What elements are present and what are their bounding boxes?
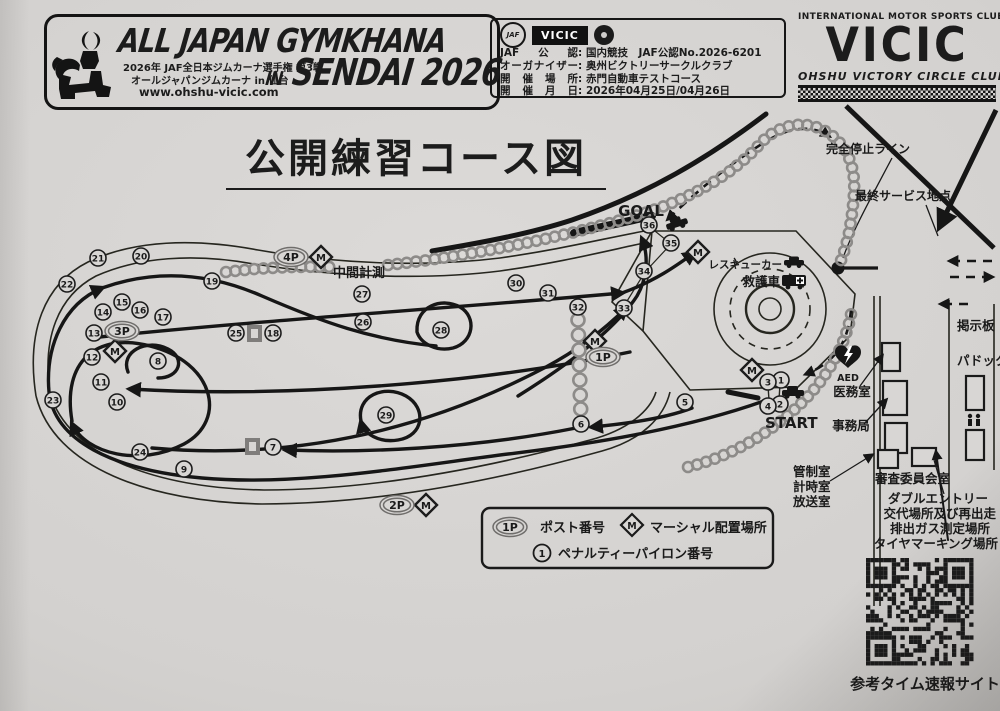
marshal-letter: M bbox=[316, 253, 326, 264]
pylon-number: 6 bbox=[578, 420, 584, 430]
qr-module bbox=[948, 558, 952, 562]
qr-module bbox=[913, 605, 917, 609]
qr-module bbox=[900, 592, 904, 596]
qr-module bbox=[935, 567, 939, 571]
slalom-pylon bbox=[574, 389, 587, 402]
qr-module bbox=[900, 601, 904, 605]
qr-module bbox=[931, 605, 935, 609]
qr-module bbox=[866, 580, 870, 584]
qr-module bbox=[931, 618, 935, 622]
qr-module bbox=[913, 580, 917, 584]
pylon-number: 5 bbox=[682, 398, 688, 408]
pylon-number: 8 bbox=[155, 357, 161, 367]
qr-module bbox=[866, 653, 870, 657]
qr-module bbox=[905, 627, 909, 631]
qr-module bbox=[931, 635, 935, 639]
qr-module bbox=[879, 648, 883, 652]
qr-module bbox=[905, 575, 909, 579]
qr-module bbox=[905, 648, 909, 652]
pylon-number: 31 bbox=[542, 289, 555, 299]
qr-module bbox=[900, 584, 904, 588]
ambulance-icon bbox=[782, 275, 806, 289]
qr-module bbox=[875, 592, 879, 596]
qr-module bbox=[961, 584, 965, 588]
pylon-number: 23 bbox=[47, 396, 60, 406]
qr-module bbox=[943, 635, 947, 639]
pylon-number: 12 bbox=[86, 353, 99, 363]
qr-module bbox=[961, 588, 965, 592]
qr-module bbox=[939, 610, 943, 614]
qr-module bbox=[965, 584, 969, 588]
qr-module bbox=[879, 567, 883, 571]
timing-room-label: 計時室 bbox=[793, 479, 831, 494]
pylon-number: 25 bbox=[230, 329, 243, 339]
qr-module bbox=[961, 571, 965, 575]
qr-module bbox=[935, 648, 939, 652]
qr-module bbox=[879, 618, 883, 622]
legend-penalty-symbol: 1 bbox=[539, 549, 546, 560]
qr-module bbox=[913, 575, 917, 579]
qr-module bbox=[956, 614, 960, 618]
pylon-number: 30 bbox=[510, 279, 523, 289]
qr-module bbox=[922, 584, 926, 588]
qr-module bbox=[918, 644, 922, 648]
qr-module bbox=[892, 567, 896, 571]
aed-icon bbox=[835, 345, 861, 368]
qr-module bbox=[918, 567, 922, 571]
qr-caption: 参考タイム速報サイト bbox=[850, 675, 1000, 693]
qr-module bbox=[866, 605, 870, 609]
qr-module bbox=[956, 558, 960, 562]
qr-module bbox=[918, 635, 922, 639]
legend-post-text: ポスト番号 bbox=[540, 520, 605, 536]
qr-module bbox=[909, 588, 913, 592]
qr-module bbox=[969, 635, 973, 639]
pylon-number: 21 bbox=[92, 254, 105, 264]
control-room-label: 管制室 bbox=[793, 464, 831, 479]
qr-module bbox=[900, 618, 904, 622]
qr-module bbox=[900, 610, 904, 614]
qr-module bbox=[926, 567, 930, 571]
goal-label: GOAL bbox=[618, 202, 664, 220]
qr-module bbox=[900, 567, 904, 571]
qr-module bbox=[931, 597, 935, 601]
qr-module bbox=[939, 588, 943, 592]
dashed-routes bbox=[668, 129, 992, 374]
qr-module bbox=[892, 575, 896, 579]
qr-module bbox=[892, 648, 896, 652]
qr-module bbox=[922, 627, 926, 631]
qr-module bbox=[879, 575, 883, 579]
qr-module bbox=[883, 567, 887, 571]
qr-module bbox=[875, 635, 879, 639]
qr-module bbox=[935, 601, 939, 605]
qr-module bbox=[870, 558, 874, 562]
pylon-number: 10 bbox=[111, 398, 124, 408]
qr-module bbox=[948, 618, 952, 622]
qr-module bbox=[900, 635, 904, 639]
qr-module bbox=[892, 571, 896, 575]
qr-module bbox=[866, 644, 870, 648]
pylon-number: 3 bbox=[765, 378, 771, 388]
qr-module bbox=[888, 631, 892, 635]
qr-module bbox=[935, 584, 939, 588]
qr-module bbox=[866, 584, 870, 588]
qr-module bbox=[931, 571, 935, 575]
qr-module bbox=[900, 644, 904, 648]
broadcast-room-label: 放送室 bbox=[792, 494, 831, 509]
pylon-number: 34 bbox=[638, 267, 651, 277]
qr-module bbox=[913, 597, 917, 601]
qr-module bbox=[866, 567, 870, 571]
qr-module bbox=[943, 558, 947, 562]
pylon-number: 2 bbox=[777, 400, 783, 410]
qr-module bbox=[913, 601, 917, 605]
qr-module bbox=[952, 592, 956, 596]
qr-module bbox=[965, 657, 969, 661]
qr-module bbox=[909, 597, 913, 601]
double-entry-label-1: ダブルエントリー bbox=[888, 491, 988, 506]
qr-module bbox=[875, 575, 879, 579]
qr-module bbox=[939, 601, 943, 605]
pylon-number: 13 bbox=[88, 329, 101, 339]
qr-module bbox=[943, 601, 947, 605]
qr-module bbox=[918, 627, 922, 631]
qr-module bbox=[965, 644, 969, 648]
qr-module bbox=[892, 592, 896, 596]
qr-module bbox=[866, 618, 870, 622]
post-label: 1P bbox=[595, 351, 611, 364]
qr-module bbox=[879, 661, 883, 665]
office-label: 事務局 bbox=[832, 418, 870, 433]
qr-module bbox=[892, 562, 896, 566]
qr-module bbox=[900, 575, 904, 579]
qr-module bbox=[883, 592, 887, 596]
qr-module bbox=[965, 605, 969, 609]
qr-module bbox=[905, 661, 909, 665]
qr-module bbox=[961, 610, 965, 614]
double-entry-label-4: タイヤマーキング場所 bbox=[874, 536, 999, 551]
qr-module bbox=[892, 627, 896, 631]
qr-module bbox=[961, 623, 965, 627]
qr-module bbox=[883, 644, 887, 648]
qr-module bbox=[961, 575, 965, 579]
qr-module bbox=[952, 571, 956, 575]
qr-module bbox=[892, 580, 896, 584]
qr-module bbox=[961, 592, 965, 596]
qr-module bbox=[926, 627, 930, 631]
qr-module bbox=[952, 588, 956, 592]
qr-module bbox=[952, 614, 956, 618]
qr-module bbox=[956, 584, 960, 588]
qr-module bbox=[892, 644, 896, 648]
qr-module bbox=[888, 584, 892, 588]
qr-module bbox=[905, 558, 909, 562]
qr-module bbox=[961, 635, 965, 639]
rescue-car-label: レスキューカー bbox=[709, 259, 783, 271]
qr-module bbox=[866, 571, 870, 575]
qr-module bbox=[965, 661, 969, 665]
qr-module bbox=[866, 592, 870, 596]
qr-module bbox=[892, 653, 896, 657]
qr-module bbox=[969, 610, 973, 614]
qr-module bbox=[948, 601, 952, 605]
qr-module bbox=[892, 661, 896, 665]
qr-module bbox=[956, 605, 960, 609]
qr-module bbox=[969, 558, 973, 562]
qr-module bbox=[948, 635, 952, 639]
qr-module bbox=[883, 653, 887, 657]
qr-module bbox=[870, 631, 874, 635]
qr-module bbox=[969, 571, 973, 575]
qr-module bbox=[931, 657, 935, 661]
qr-module bbox=[956, 618, 960, 622]
qr-module bbox=[879, 631, 883, 635]
car-icon-goal bbox=[664, 214, 689, 233]
qr-module bbox=[922, 661, 926, 665]
legend-post-symbol: 1P bbox=[502, 521, 518, 534]
qr-module bbox=[961, 661, 965, 665]
qr-module bbox=[909, 592, 913, 596]
gray-square-inner bbox=[249, 442, 256, 451]
qr-module bbox=[883, 575, 887, 579]
qr-module bbox=[896, 562, 900, 566]
qr-module bbox=[939, 567, 943, 571]
qr-module bbox=[943, 592, 947, 596]
pylon-number: 9 bbox=[181, 465, 187, 475]
qr-module bbox=[879, 571, 883, 575]
qr-module bbox=[900, 661, 904, 665]
qr-module bbox=[888, 635, 892, 639]
qr-module bbox=[961, 567, 965, 571]
medical-room-label: 医務室 bbox=[833, 384, 871, 399]
qr-module bbox=[883, 648, 887, 652]
pylon-number: 35 bbox=[665, 239, 678, 249]
qr-module bbox=[943, 657, 947, 661]
pylon-number: 26 bbox=[357, 318, 370, 328]
qr-module bbox=[939, 635, 943, 639]
qr-module bbox=[913, 661, 917, 665]
qr-module bbox=[926, 571, 930, 575]
qr-module bbox=[918, 588, 922, 592]
qr-module bbox=[875, 631, 879, 635]
qr-module bbox=[896, 614, 900, 618]
qr-module bbox=[896, 575, 900, 579]
pylon-number: 24 bbox=[134, 448, 147, 458]
legend-marshal-text: マーシャル配置場所 bbox=[650, 520, 767, 536]
qr-module bbox=[918, 614, 922, 618]
qr-module bbox=[969, 580, 973, 584]
qr-module bbox=[969, 584, 973, 588]
qr-module bbox=[926, 575, 930, 579]
pylon-number: 27 bbox=[356, 290, 369, 300]
qr-module bbox=[909, 618, 913, 622]
qr-module bbox=[969, 657, 973, 661]
qr-module bbox=[879, 635, 883, 639]
qr-module bbox=[926, 562, 930, 566]
qr-module bbox=[939, 575, 943, 579]
scanned-course-map-page: ALL JAPAN GYMKHANA IN SENDAI 2026 2026年 … bbox=[0, 0, 1000, 711]
legend-penalty-text: ペナルティーパイロン番号 bbox=[558, 546, 713, 562]
qr-module bbox=[943, 627, 947, 631]
pylon-number: 14 bbox=[97, 308, 110, 318]
qr-module bbox=[935, 631, 939, 635]
qr-module bbox=[888, 610, 892, 614]
aed-label: AED bbox=[837, 373, 859, 384]
pylon-number: 32 bbox=[572, 303, 585, 313]
qr-module bbox=[870, 661, 874, 665]
pylon-number: 15 bbox=[116, 298, 129, 308]
qr-module bbox=[956, 631, 960, 635]
qr-module bbox=[883, 584, 887, 588]
label-leaders bbox=[734, 158, 944, 494]
qr-module bbox=[913, 648, 917, 652]
qr-module bbox=[961, 627, 965, 631]
qr-module bbox=[883, 661, 887, 665]
qr-module bbox=[875, 648, 879, 652]
qr-module bbox=[922, 644, 926, 648]
qr-module bbox=[918, 592, 922, 596]
double-entry-label-2: 交代場所及び再出走 bbox=[883, 506, 996, 521]
qr-module bbox=[892, 601, 896, 605]
qr-module bbox=[892, 635, 896, 639]
post-label: 2P bbox=[389, 499, 405, 512]
pylon-number: 7 bbox=[270, 443, 276, 453]
qr-module bbox=[875, 567, 879, 571]
pylon-number: 22 bbox=[61, 280, 74, 290]
qr-module bbox=[879, 627, 883, 631]
qr-module bbox=[926, 580, 930, 584]
qr-module bbox=[965, 614, 969, 618]
qr-module bbox=[909, 605, 913, 609]
qr-module bbox=[896, 653, 900, 657]
pylon-number: 19 bbox=[206, 277, 219, 287]
restroom-icon bbox=[968, 414, 980, 426]
qr-module bbox=[926, 623, 930, 627]
qr-module bbox=[956, 597, 960, 601]
qr-module bbox=[926, 610, 930, 614]
qr-module bbox=[961, 631, 965, 635]
qr-module bbox=[870, 614, 874, 618]
qr-module bbox=[948, 584, 952, 588]
qr-module bbox=[888, 597, 892, 601]
qr-module bbox=[952, 644, 956, 648]
qr-module bbox=[922, 562, 926, 566]
paddock-label: パドック bbox=[957, 353, 1000, 368]
pylon-number: 17 bbox=[157, 313, 170, 323]
qr-module bbox=[939, 661, 943, 665]
slalom-pylon bbox=[572, 344, 585, 357]
slalom-pylon bbox=[574, 403, 587, 416]
qr-module bbox=[875, 571, 879, 575]
qr-module bbox=[935, 653, 939, 657]
qr-module bbox=[969, 588, 973, 592]
qr-module bbox=[875, 597, 879, 601]
qr-module bbox=[935, 605, 939, 609]
qr-module bbox=[892, 640, 896, 644]
legend-marshal-symbol: M bbox=[627, 521, 636, 532]
qr-module bbox=[931, 601, 935, 605]
service-area-lines bbox=[846, 106, 996, 248]
stewards-room-label: 審査委員会室 bbox=[874, 471, 951, 486]
qr-module bbox=[956, 575, 960, 579]
marshal-letter: M bbox=[693, 248, 703, 259]
qr-module bbox=[935, 610, 939, 614]
qr-module bbox=[952, 584, 956, 588]
course-map: 1234567891011121314151617181920212223242… bbox=[0, 0, 1000, 711]
qr-module bbox=[888, 558, 892, 562]
marshal-letter: M bbox=[110, 347, 120, 358]
qr-module bbox=[866, 640, 870, 644]
legend-box: 1P ポスト番号 M マーシャル配置場所 1 ペナルティーパイロン番号 bbox=[482, 508, 773, 568]
qr-module bbox=[900, 558, 904, 562]
qr-module bbox=[905, 653, 909, 657]
qr-module bbox=[952, 648, 956, 652]
marshal-letter: M bbox=[747, 366, 757, 377]
qr-module bbox=[875, 653, 879, 657]
qr-module bbox=[892, 657, 896, 661]
qr-module bbox=[935, 580, 939, 584]
qr-module bbox=[943, 661, 947, 665]
marshal-letter: M bbox=[590, 337, 600, 348]
qr-module bbox=[918, 610, 922, 614]
qr-module bbox=[883, 631, 887, 635]
qr-module bbox=[926, 614, 930, 618]
qr-module bbox=[866, 558, 870, 562]
qr-module bbox=[888, 614, 892, 618]
qr-module bbox=[875, 558, 879, 562]
pylon-number: 16 bbox=[134, 306, 147, 316]
qr-module bbox=[943, 653, 947, 657]
qr-module bbox=[896, 627, 900, 631]
qr-module bbox=[900, 627, 904, 631]
qr-module bbox=[883, 635, 887, 639]
post-label: 4P bbox=[283, 251, 299, 264]
qr-module bbox=[875, 661, 879, 665]
qr-module bbox=[943, 562, 947, 566]
qr-module bbox=[943, 614, 947, 618]
qr-module bbox=[870, 584, 874, 588]
qr-module bbox=[866, 661, 870, 665]
qr-module bbox=[961, 653, 965, 657]
qr-module bbox=[961, 648, 965, 652]
qr-module bbox=[931, 584, 935, 588]
double-entry-label-3: 排出ガス測定場所 bbox=[890, 521, 991, 536]
qr-module bbox=[870, 618, 874, 622]
qr-module bbox=[969, 623, 973, 627]
qr-module bbox=[943, 644, 947, 648]
qr-module bbox=[883, 571, 887, 575]
qr-module bbox=[875, 584, 879, 588]
pylon-number: 36 bbox=[643, 221, 656, 231]
qr-module bbox=[905, 562, 909, 566]
qr-code bbox=[866, 558, 974, 666]
qr-module bbox=[913, 562, 917, 566]
qr-module bbox=[879, 588, 883, 592]
qr-module bbox=[913, 635, 917, 639]
qr-module bbox=[952, 567, 956, 571]
qr-module bbox=[935, 614, 939, 618]
qr-module bbox=[905, 610, 909, 614]
qr-module bbox=[948, 588, 952, 592]
qr-module bbox=[905, 567, 909, 571]
qr-module bbox=[918, 640, 922, 644]
slalom-pylon bbox=[572, 329, 585, 342]
qr-module bbox=[875, 614, 879, 618]
qr-module bbox=[969, 653, 973, 657]
slalom-pylon bbox=[573, 359, 586, 372]
qr-module bbox=[879, 644, 883, 648]
